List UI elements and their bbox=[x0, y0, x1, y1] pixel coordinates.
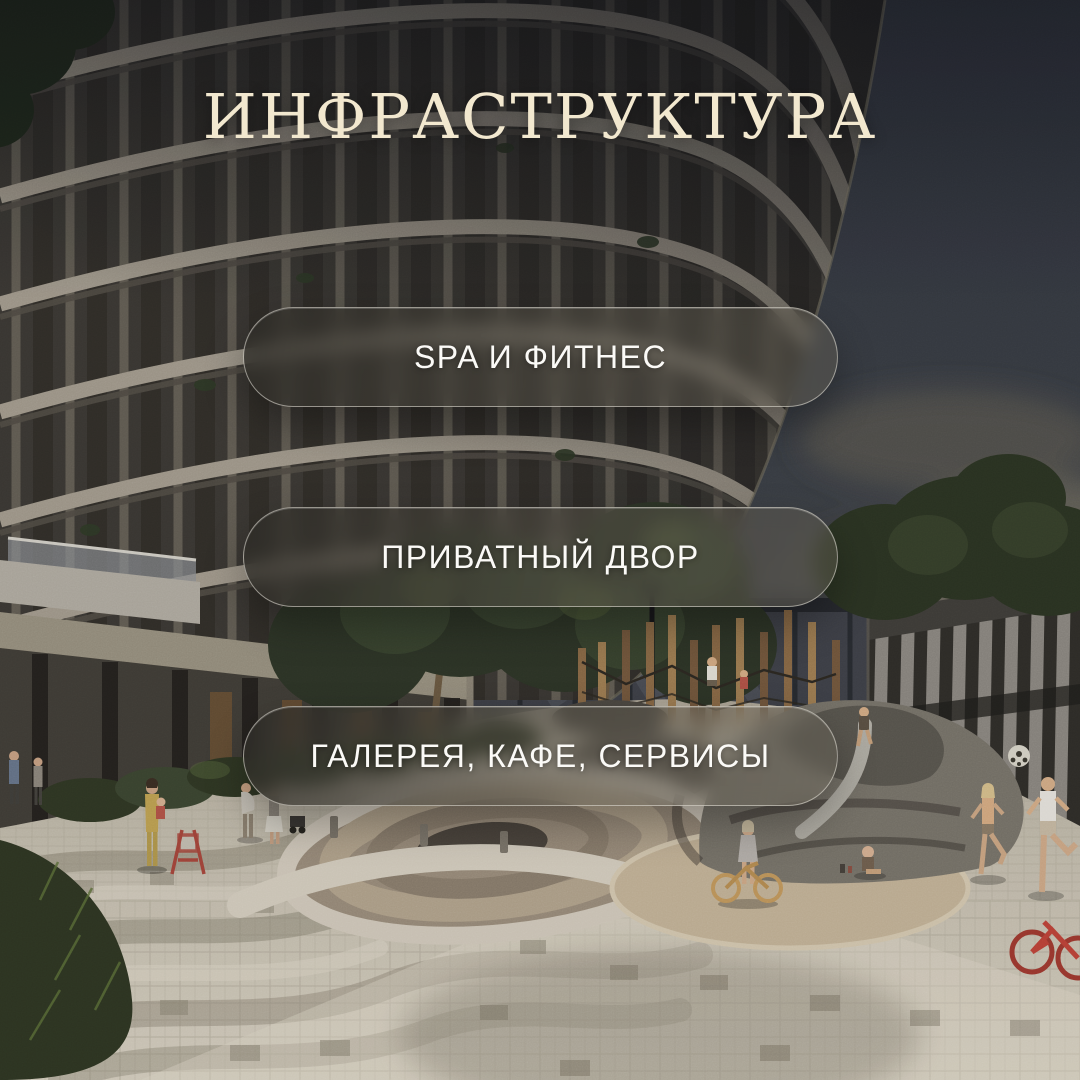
button-label: SPA И ФИТНЕС bbox=[414, 339, 667, 376]
page-title: ИНФРАСТРУКТУРА bbox=[0, 86, 1080, 148]
button-label: ГАЛЕРЕЯ, КАФЕ, СЕРВИСЫ bbox=[310, 738, 770, 775]
infrastructure-button-spa-fitness[interactable]: SPA И ФИТНЕС bbox=[243, 307, 838, 407]
infrastructure-button-gallery-cafe-services[interactable]: ГАЛЕРЕЯ, КАФЕ, СЕРВИСЫ bbox=[243, 706, 838, 806]
infrastructure-button-private-yard[interactable]: ПРИВАТНЫЙ ДВОР bbox=[243, 507, 838, 607]
infographic-slide: ИНФРАСТРУКТУРА SPA И ФИТНЕС ПРИВАТНЫЙ ДВ… bbox=[0, 0, 1080, 1080]
button-label: ПРИВАТНЫЙ ДВОР bbox=[381, 539, 700, 576]
